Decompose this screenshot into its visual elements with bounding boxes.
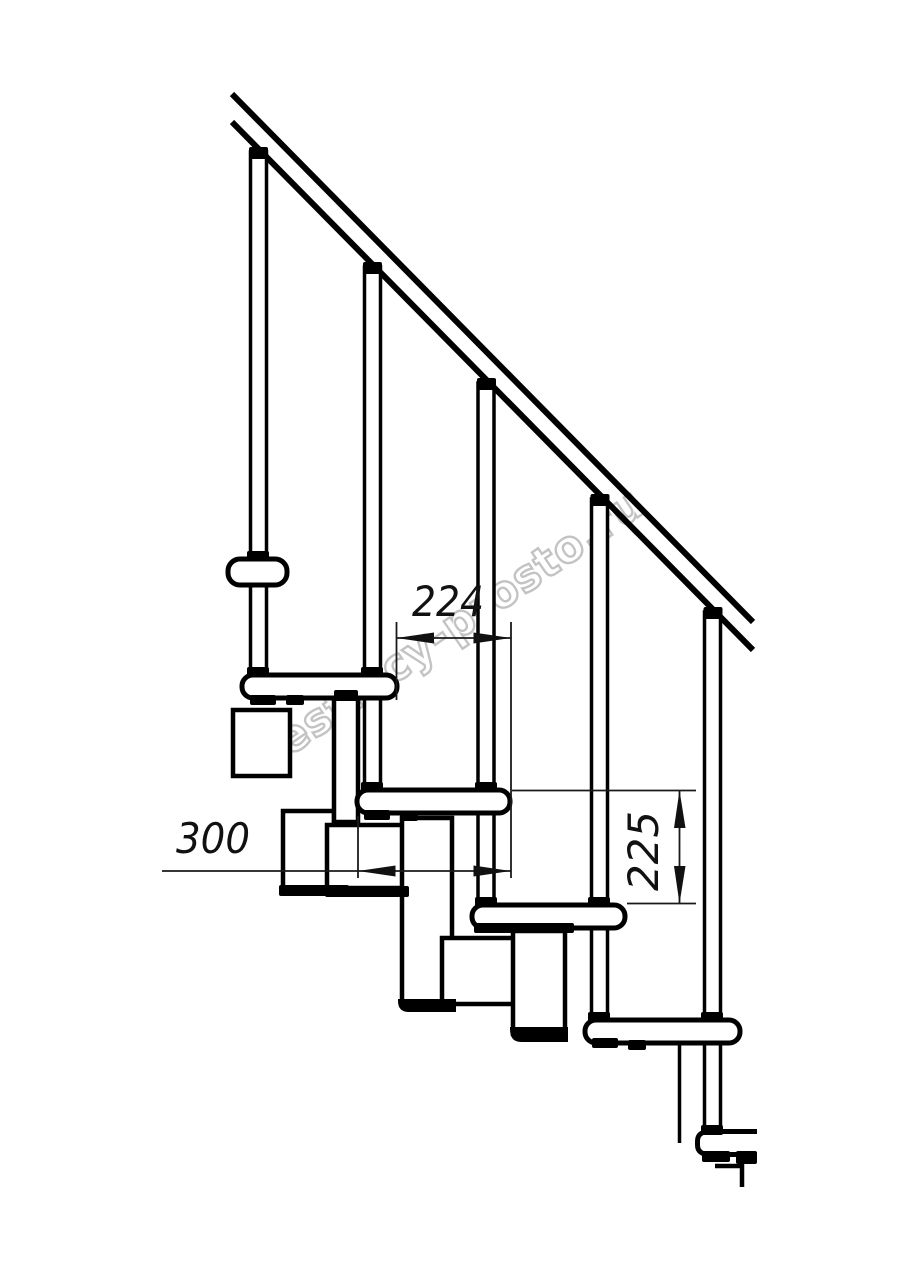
baluster-3 [478, 383, 494, 910]
baluster-4 [592, 499, 608, 1025]
riser-column-1 [334, 697, 358, 822]
baluster-1 [251, 152, 267, 682]
dim-label-224: 224 [412, 577, 484, 626]
landing-tread-edge [228, 559, 287, 585]
staircase-drawing-page: lestnicy-prosto.ru [0, 0, 914, 1280]
tread-2 [357, 790, 510, 813]
spine-box-m3 [442, 938, 518, 1004]
riser-column-3 [513, 931, 565, 1034]
bottom-step-line [715, 1166, 742, 1187]
baluster-5 [705, 612, 721, 1138]
spine-modules [233, 697, 565, 1034]
dim-label-300: 300 [176, 814, 250, 863]
staircase-drawing: lestnicy-prosto.ru [0, 0, 914, 1280]
spine-box-m2 [327, 825, 406, 888]
tread-1 [242, 675, 397, 698]
baluster-2 [365, 267, 381, 795]
spine-box-u1 [233, 710, 290, 776]
dim-label-225: 225 [619, 811, 668, 891]
